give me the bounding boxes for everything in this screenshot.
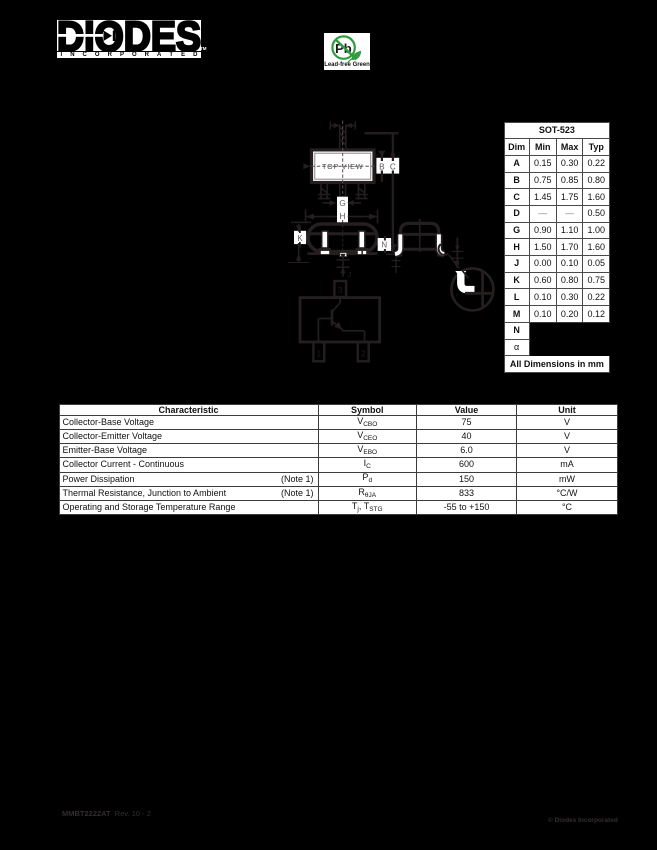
svg-text:K: K <box>297 234 303 243</box>
svg-text:B: B <box>379 162 385 171</box>
svg-text:G: G <box>339 199 345 208</box>
svg-text:C: C <box>390 162 396 171</box>
svg-text:H: H <box>340 212 346 221</box>
svg-text:2: 2 <box>361 349 366 358</box>
svg-text:N: N <box>381 241 387 250</box>
svg-text:3: 3 <box>338 286 343 295</box>
svg-text:TOP VIEW: TOP VIEW <box>322 162 363 171</box>
svg-text:J: J <box>348 272 352 279</box>
svg-text:1: 1 <box>317 349 322 358</box>
